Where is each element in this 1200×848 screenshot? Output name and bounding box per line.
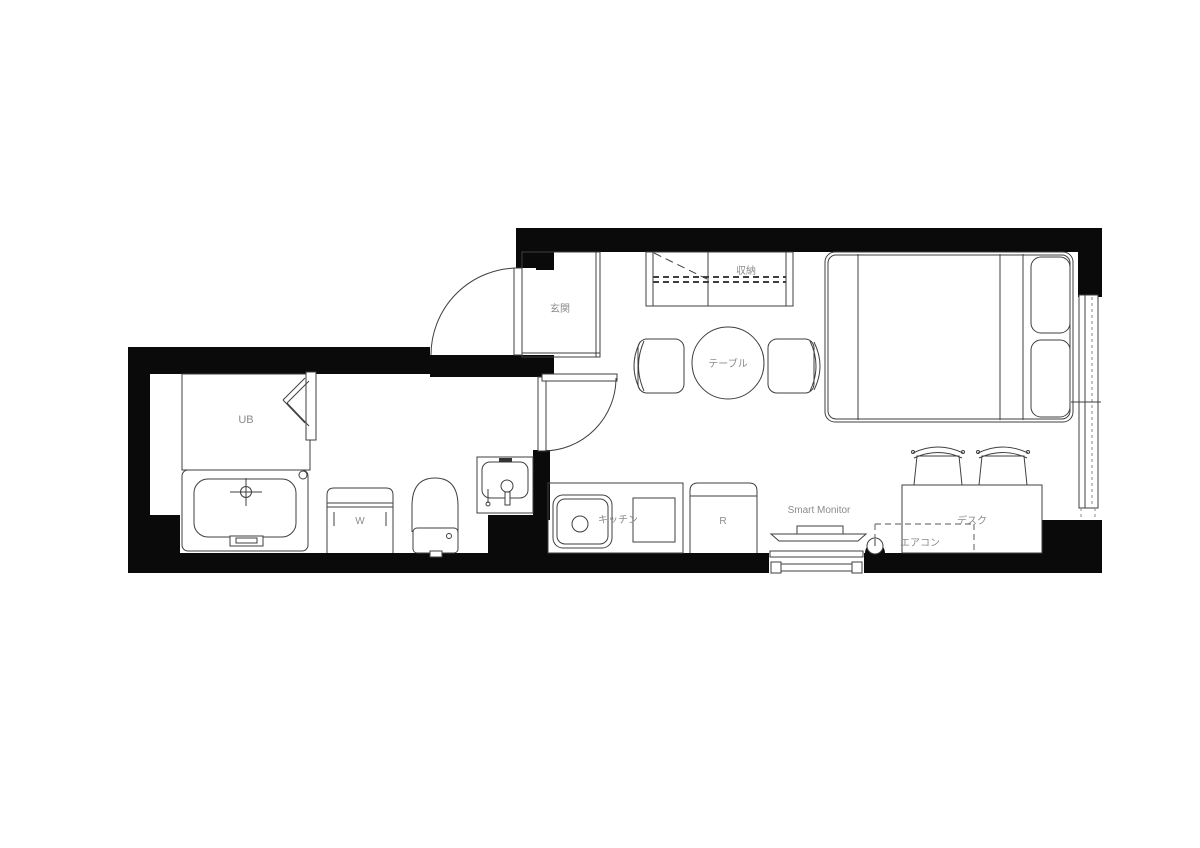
washroom-door — [538, 374, 617, 451]
kitchen-counter: キッチン — [548, 483, 683, 553]
toilet — [412, 478, 458, 557]
washroom-door-frame — [538, 377, 546, 451]
washing-machine: W — [327, 488, 393, 553]
chair-left — [634, 339, 684, 393]
closet: 収納 — [646, 252, 793, 306]
washroom-door-swing-arc — [543, 378, 616, 451]
aircon-label: エアコン — [900, 538, 940, 549]
wall-sink-corner — [488, 515, 548, 573]
closet-label: 収納 — [736, 264, 756, 277]
smart-monitor: Smart Monitor — [771, 505, 866, 541]
unit-bath-label: UB — [238, 414, 253, 426]
bed — [825, 252, 1073, 422]
wall-right-top — [1078, 228, 1102, 297]
dining-table: テーブル — [692, 327, 764, 399]
tv-stand-leg-right — [852, 562, 862, 573]
desk-label: デスク — [957, 514, 987, 527]
vanity-sink — [477, 457, 533, 513]
table-label: テーブル — [708, 357, 747, 370]
wall-main-top — [516, 228, 1102, 252]
bed-pillow-bottom — [1031, 340, 1070, 417]
wall-entry-side — [430, 355, 554, 377]
vanity-backsplash — [499, 458, 512, 462]
wall-bath-top — [128, 347, 430, 374]
closet-pipe-dashed — [654, 253, 707, 279]
entrance-door-swing-arc — [431, 268, 518, 355]
bathtub-faucet — [299, 471, 307, 479]
washer-label: W — [355, 516, 365, 527]
wall-divider-lower — [533, 450, 550, 520]
wall-light — [865, 538, 885, 563]
refrigerator: R — [690, 483, 757, 553]
entrance-door — [431, 268, 522, 355]
ub-bifold-door — [283, 378, 309, 426]
wall-genkan-tab — [536, 252, 554, 270]
bed-pillow-top — [1031, 257, 1070, 333]
tv-stand-leg-left — [771, 562, 781, 573]
window — [1071, 295, 1101, 520]
bathtub — [182, 470, 308, 551]
monitor-stand-base — [797, 526, 843, 534]
desk-chair-right — [977, 447, 1030, 485]
monitor-screen — [771, 534, 866, 541]
vanity-faucet — [501, 480, 513, 492]
air-conditioner: エアコン — [875, 524, 974, 553]
entrance-label: 玄関 — [550, 302, 570, 315]
toilet-tank — [413, 528, 458, 553]
tv-stand — [769, 551, 864, 575]
wall-left — [128, 347, 150, 523]
entrance-door-leaf — [514, 268, 522, 355]
floor-plan-canvas: UB W 玄関 — [0, 0, 1200, 848]
toilet-bowl — [412, 478, 458, 532]
washroom-door-leaf — [542, 374, 617, 381]
unit-bath-room: UB — [182, 372, 316, 551]
kitchen-drain — [572, 516, 588, 532]
wall-right-corner — [1042, 520, 1102, 573]
kitchen-label: キッチン — [598, 514, 638, 526]
kitchen-stove — [633, 498, 675, 542]
desk-chair-left — [912, 447, 965, 485]
tv-stand-top — [770, 551, 863, 557]
chair-right — [768, 339, 820, 393]
entrance-area: 玄関 — [431, 252, 600, 357]
fridge-label: R — [719, 516, 726, 527]
floor-plan-drawing: UB W 玄関 — [0, 0, 1200, 848]
smart-monitor-label: Smart Monitor — [788, 505, 851, 516]
